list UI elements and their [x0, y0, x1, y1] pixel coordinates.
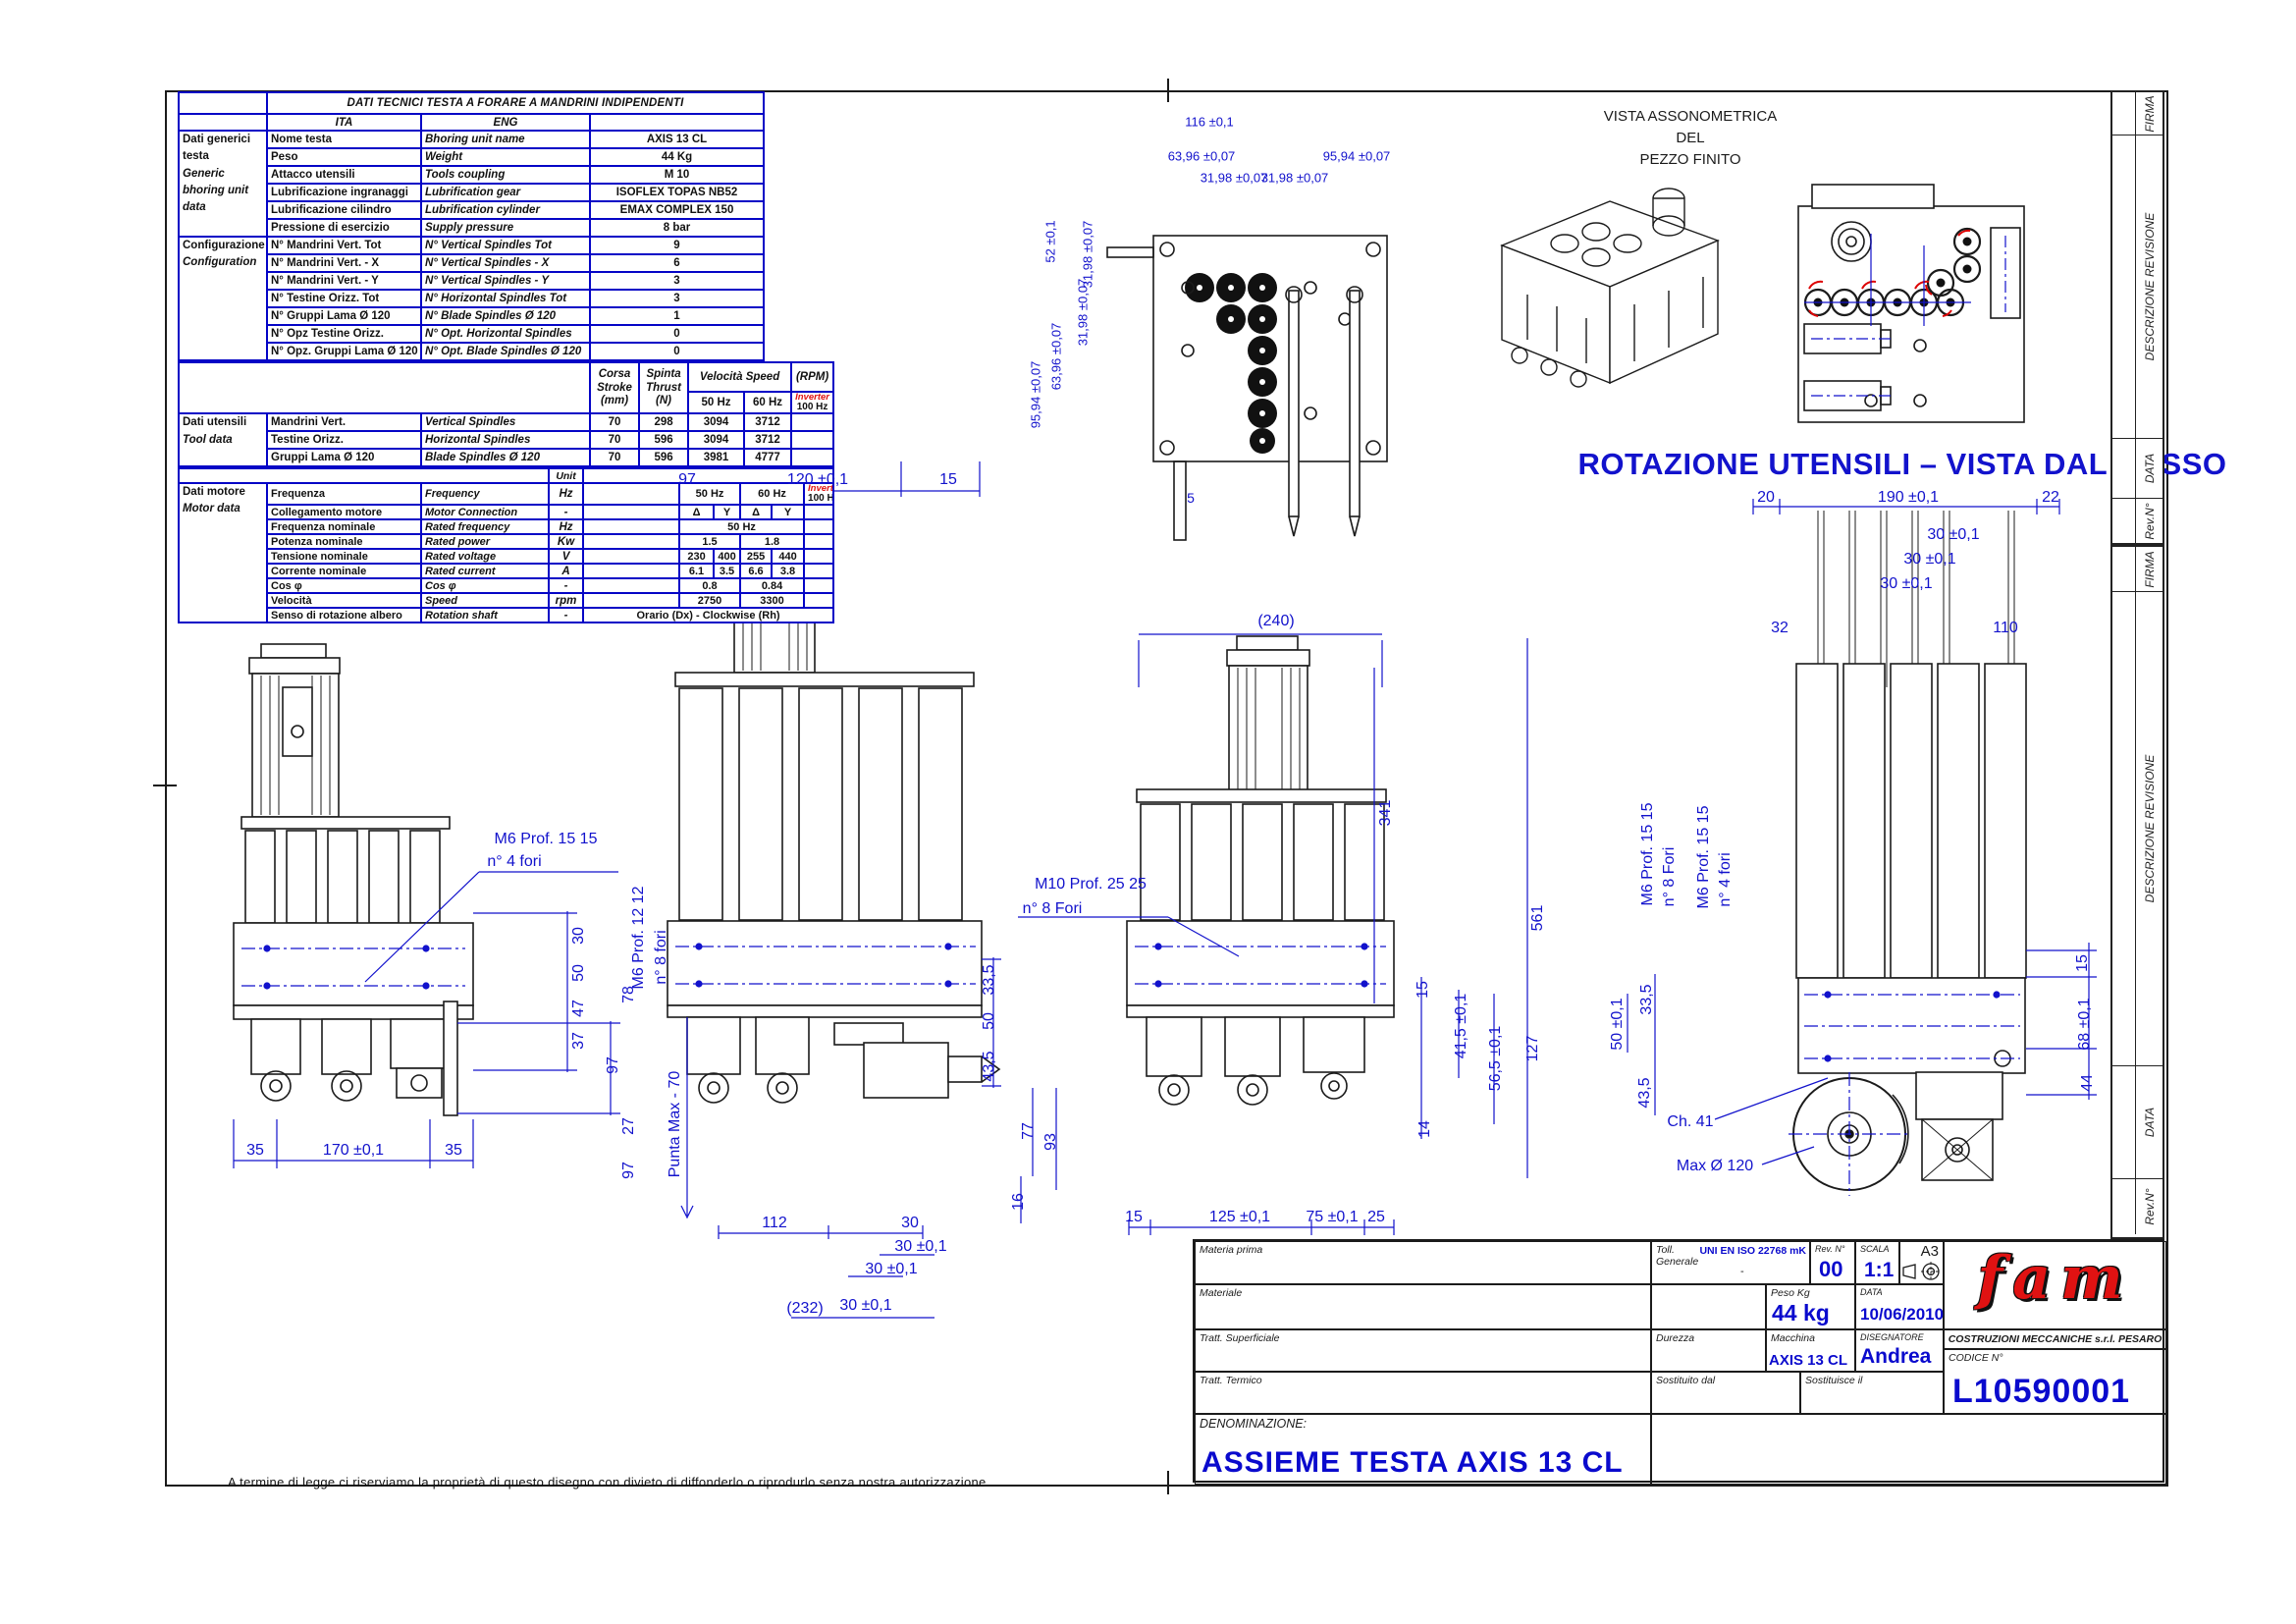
- table-cell: [791, 431, 833, 449]
- table-cell: [179, 92, 267, 114]
- table-row: N° Gruppi Lama Ø 120N° Blade Spindles Ø …: [179, 307, 764, 325]
- drawing-shape: CorsaStroke(mm)SpintaThrust(N)Velocità S…: [179, 362, 833, 466]
- table-cell: SpintaThrust(N): [639, 362, 688, 413]
- revision-cell-revn: Rev.N°: [2112, 1179, 2163, 1234]
- rev-n-label: Rev.N°: [2143, 1188, 2157, 1224]
- drawing-shape: [1321, 1073, 1347, 1099]
- table-cell: Unit: [549, 468, 583, 483]
- drawing-shape: [1825, 992, 1831, 998]
- drawing-shape: [687, 1017, 740, 1074]
- isometric-view-title: VISTA ASSONOMETRICA DEL PEZZO FINITO: [1604, 106, 1777, 170]
- text-element: Toll.: [1656, 1244, 1675, 1256]
- drawing-shape: [410, 831, 440, 923]
- text-element: Dati generici testa: [183, 132, 263, 166]
- tool-data-table: CorsaStroke(mm)SpintaThrust(N)Velocità S…: [178, 361, 834, 467]
- revision-cell-data: DATA: [2112, 439, 2163, 499]
- table-cell: 50 Hz: [679, 483, 740, 505]
- table-cell: 6: [590, 254, 764, 272]
- table-cell: 6.6: [740, 564, 772, 578]
- table-cell: Cos φ: [421, 578, 549, 593]
- denominazione-value: ASSIEME TESTA AXIS 13 CL: [1201, 1446, 1624, 1480]
- table-cell: [583, 468, 833, 483]
- table-row: Attacco utensiliTools couplingM 10: [179, 166, 764, 184]
- macchina-value: AXIS 13 CL: [1769, 1352, 1847, 1369]
- table-cell: Weight: [421, 148, 590, 166]
- table-cell: [791, 413, 833, 431]
- revision-cell-firma: FIRMA: [2112, 92, 2163, 135]
- table-row: Frequenza nominaleRated frequencyHz50 Hz: [179, 519, 833, 534]
- table-cell: [804, 505, 833, 519]
- drawing-shape: [1903, 1262, 1941, 1281]
- table-cell: Y: [714, 505, 740, 519]
- table-cell: N° Opt. Blade Spindles Ø 120: [421, 343, 590, 360]
- revision-cell-revn: Rev.N°: [2112, 499, 2163, 544]
- table-cell: DATI TECNICI TESTA A FORARE A MANDRINI I…: [267, 92, 764, 114]
- table-cell: 3.8: [772, 564, 804, 578]
- table-cell: N° Opz. Gruppi Lama Ø 120: [267, 343, 421, 360]
- company-cell: COSTRUZIONI MECCANICHE s.r.l. PESARO: [1944, 1329, 2166, 1349]
- tratt-termico-label: Tratt. Termico: [1200, 1375, 1262, 1386]
- table-cell: Hz: [549, 483, 583, 505]
- table-cell: Corrente nominale: [267, 564, 421, 578]
- table-cell: Orario (Dx) - Clockwise (Rh): [583, 608, 833, 623]
- table-cell: 0: [590, 325, 764, 343]
- fam-logo: fam: [1945, 1244, 2165, 1313]
- table-cell: 44 Kg: [590, 148, 764, 166]
- table-cell: [804, 564, 833, 578]
- sostituito-label: Sostituito dal: [1656, 1375, 1715, 1386]
- table-cell: Rated voltage: [421, 549, 549, 564]
- drawing-shape: [1129, 1219, 1394, 1235]
- drawing-shape: [919, 688, 962, 920]
- table-row: ConfigurazioneConfigurationN° Mandrini V…: [179, 237, 764, 254]
- drawing-shape: [1903, 1265, 1915, 1278]
- drawing-shape: [328, 831, 357, 923]
- codice-label: CODICE N°: [1949, 1352, 2003, 1364]
- table-cell: [583, 519, 679, 534]
- motor-data-table: UnitDati motoreMotor dataFrequenzaFreque…: [178, 467, 834, 623]
- drawing-shape: [1789, 1072, 1910, 1196]
- data-cell: DATA 10/06/2010: [1855, 1284, 1944, 1329]
- toll-value: UNI EN ISO 22768 mK: [1699, 1245, 1806, 1257]
- table-cell: CorsaStroke(mm): [590, 362, 639, 413]
- table-row: Senso di rotazione alberoRotation shaft-…: [179, 608, 833, 623]
- table-cell: ISOFLEX TOPAS NB52: [590, 184, 764, 201]
- table-row: Gruppi Lama Ø 120Blade Spindles Ø 120705…: [179, 449, 833, 466]
- drawing-shape: [1247, 1084, 1258, 1096]
- data-label: DATA: [2143, 454, 2157, 483]
- table-cell: 596: [639, 431, 688, 449]
- table-cell: [583, 578, 679, 593]
- table-cell: Collegamento motore: [267, 505, 421, 519]
- table-cell: Y: [772, 505, 804, 519]
- table-cell: 70: [590, 431, 639, 449]
- table-cell: Lubrificazione cilindro: [267, 201, 421, 219]
- table-cell: Lubrificazione ingranaggi: [267, 184, 421, 201]
- disegnatore-label: DISEGNATORE: [1860, 1332, 1924, 1342]
- scala-cell: SCALA 1:1: [1855, 1241, 1899, 1284]
- table-cell: Δ: [679, 505, 714, 519]
- table-cell: N° Opt. Horizontal Spindles: [421, 325, 590, 343]
- table-row: Testine Orizz.Horizontal Spindles7059630…: [179, 431, 833, 449]
- revision-cell-descrizione: DESCRIZIONE REVISIONE: [2112, 592, 2163, 1066]
- drawing-shape: [1259, 316, 1265, 322]
- drawing-shape: [1916, 1072, 2002, 1119]
- table-cell: 50 Hz: [688, 392, 744, 413]
- plan-view-sketch: [1107, 236, 1387, 540]
- table-row: ITAENG: [179, 114, 764, 131]
- drawing-shape: [1259, 285, 1265, 291]
- drawing-shape: [667, 921, 982, 1005]
- table-cell: ENG: [421, 114, 590, 131]
- table-cell: Supply pressure: [421, 219, 590, 237]
- table-cell: Horizontal Spindles: [421, 431, 590, 449]
- drawing-shape: [1421, 977, 1494, 1139]
- table-cell: 3981: [688, 449, 744, 466]
- table-cell: Frequenza nominale: [267, 519, 421, 534]
- table-cell: Kw: [549, 534, 583, 549]
- table-cell: Tools coupling: [421, 166, 590, 184]
- table-cell: [804, 519, 833, 534]
- peso-label: Peso Kg: [1771, 1287, 1810, 1299]
- drawing-shape: [675, 673, 974, 686]
- table-cell: Attacco utensili: [267, 166, 421, 184]
- text-element: Motor data: [183, 501, 263, 517]
- table-cell: 1.5: [679, 534, 740, 549]
- table-cell: [804, 593, 833, 608]
- table-cell: [583, 534, 679, 549]
- table-cell: 230: [679, 549, 714, 564]
- table-cell: N° Blade Spindles Ø 120: [421, 307, 590, 325]
- drawing-shape: [1141, 804, 1180, 920]
- table-cell: N° Mandrini Vert. Tot: [267, 237, 421, 254]
- drawing-sheet: DATI TECNICI TESTA A FORARE A MANDRINI I…: [0, 0, 2296, 1624]
- toll-label: Toll.Generale: [1656, 1244, 1698, 1268]
- table-cell: N° Mandrini Vert. - X: [267, 254, 421, 272]
- table-row: N° Opz. Gruppi Lama Ø 120N° Opt. Blade S…: [179, 343, 764, 360]
- table-cell: rpm: [549, 593, 583, 608]
- drawing-shape: [1753, 499, 2059, 514]
- text-element: Tool data: [183, 432, 263, 449]
- table-cell: Nome testa: [267, 131, 421, 148]
- drawing-shape: [1938, 664, 1979, 978]
- table-cell: Tensione nominale: [267, 549, 421, 564]
- drawing-shape: [444, 1001, 457, 1115]
- table-cell: Inverter100 Hz: [804, 483, 833, 505]
- macchina-cell: Macchina AXIS 13 CL: [1766, 1329, 1855, 1372]
- drawing-shape: [473, 911, 577, 1072]
- table-cell: Senso di rotazione albero: [267, 608, 421, 623]
- table-cell: [583, 593, 679, 608]
- drawing-shape: [1259, 379, 1265, 385]
- drawing-shape: [332, 1071, 361, 1101]
- drawing-shape: [457, 1021, 620, 1115]
- table-cell: [804, 534, 833, 549]
- tolleranze-cell: Toll.Generale UNI EN ISO 22768 mK -: [1651, 1241, 1810, 1284]
- table-cell: 70: [590, 413, 639, 431]
- iso-title-line3: PEZZO FINITO: [1604, 149, 1777, 171]
- table-cell: Speed: [421, 593, 549, 608]
- text-element: Generale: [1656, 1256, 1698, 1268]
- table-cell: N° Mandrini Vert. - Y: [267, 272, 421, 290]
- table-cell: 440: [772, 549, 804, 564]
- drawing-shape: [1812, 185, 1934, 208]
- table-row: N° Mandrini Vert. - YN° Vertical Spindle…: [179, 272, 764, 290]
- table-cell: ConfigurazioneConfiguration: [179, 237, 267, 360]
- drawing-shape: [776, 1082, 788, 1094]
- drawing-shape: [252, 674, 339, 817]
- table-cell: Rotation shaft: [421, 608, 549, 623]
- text-element: 100 Hz: [808, 494, 829, 505]
- drawing-shape: [945, 981, 951, 987]
- drawing-shape: [234, 1005, 473, 1019]
- drawing-shape: [739, 688, 782, 920]
- table-cell: Vertical Spindles: [421, 413, 590, 431]
- drawing-shape: [864, 1043, 948, 1098]
- table-cell: -: [549, 505, 583, 519]
- materiale-cell: Materiale: [1195, 1284, 1651, 1329]
- rev-value: 00: [1819, 1257, 1842, 1282]
- table-row: Lubrificazione ingranaggiLubrification g…: [179, 184, 764, 201]
- disegnatore-value: Andrea: [1860, 1345, 1931, 1369]
- table-cell: Inverter100 Hz: [791, 392, 833, 413]
- drawing-shape: [1796, 664, 1838, 978]
- data-label: DATA: [1860, 1287, 1883, 1297]
- table-cell: 3300: [740, 593, 804, 608]
- peso-cell: Peso Kg 44 kg: [1766, 1284, 1855, 1329]
- table-cell: 255: [740, 549, 772, 564]
- tratt-superficiale-cell: Tratt. Superficiale: [1195, 1329, 1651, 1372]
- table-cell: 596: [639, 449, 688, 466]
- table-cell: [179, 468, 549, 483]
- table-cell: Lubrification gear: [421, 184, 590, 201]
- drawing-shape: [1227, 650, 1309, 666]
- table-cell: 3: [590, 290, 764, 307]
- table-cell: Dati generici testaGeneric bhoring unit …: [179, 131, 267, 237]
- macchina-label: Macchina: [1771, 1332, 1815, 1344]
- drawing-shape: [1127, 921, 1394, 1005]
- firma-label: FIRMA: [2143, 95, 2157, 132]
- table-cell: AXIS 13 CL: [590, 131, 764, 148]
- denominazione-cell: DENOMINAZIONE: ASSIEME TESTA AXIS 13 CL: [1195, 1414, 1651, 1485]
- blank-cell: [1651, 1284, 1766, 1329]
- table-row: Collegamento motoreMotor Connection-ΔYΔY: [179, 505, 833, 519]
- drawing-shape: [1229, 666, 1308, 791]
- drawing-shape: [322, 1019, 371, 1074]
- projection-symbol-icon: [1901, 1262, 1943, 1281]
- revision-strip-bottom: FIRMA DESCRIZIONE REVISIONE DATA Rev.N°: [2110, 545, 2164, 1239]
- drawing-shape: [1921, 1262, 1941, 1281]
- drawing-shape: [1541, 359, 1557, 375]
- drawing-shape: [1294, 804, 1333, 920]
- drawing-shape: [1259, 348, 1265, 353]
- drawing-shape: [1571, 371, 1586, 387]
- drawing-shape: [249, 658, 340, 674]
- drawing-shape: [287, 831, 316, 923]
- rotation-view-sketch: [1798, 185, 2024, 422]
- table-cell: Velocità: [267, 593, 421, 608]
- drawing-shape: UnitDati motoreMotor dataFrequenzaFreque…: [179, 468, 833, 623]
- toll-value-2: -: [1740, 1266, 1744, 1277]
- drawing-shape: [1243, 804, 1282, 920]
- drawing-shape: [1137, 789, 1386, 802]
- drawing-shape: [1374, 638, 1527, 1178]
- table-cell: 400: [714, 549, 740, 564]
- format-cell: A3: [1899, 1241, 1944, 1284]
- drawing-shape: [945, 944, 951, 949]
- drawing-shape: [1628, 974, 1655, 1115]
- drawing-shape: [245, 831, 275, 923]
- drawing-shape: [791, 1255, 934, 1318]
- sostituisce-label: Sostituisce il: [1805, 1375, 1862, 1386]
- drawing-shape: [423, 946, 429, 951]
- drawing-shape: [1362, 944, 1367, 949]
- table-cell: Velocità Speed: [688, 362, 791, 392]
- table-cell: 2750: [679, 593, 740, 608]
- table-cell: 70: [590, 449, 639, 466]
- drawing-shape: [391, 1019, 448, 1068]
- drawing-shape: [264, 946, 270, 951]
- table-cell: Cos φ: [267, 578, 421, 593]
- table-cell: Lubrification cylinder: [421, 201, 590, 219]
- table-cell: ITA: [267, 114, 421, 131]
- table-cell: N° Opz Testine Orizz.: [267, 325, 421, 343]
- drawing-shape: [1985, 664, 2026, 978]
- table-row: N° Testine Orizz. TotN° Horizontal Spind…: [179, 290, 764, 307]
- table-cell: A: [549, 564, 583, 578]
- scala-label: SCALA: [1860, 1244, 1890, 1254]
- durezza-label: Durezza: [1656, 1332, 1694, 1344]
- drawing-shape: DATI TECNICI TESTA A FORARE A MANDRINI I…: [179, 92, 764, 360]
- drawing-shape: [948, 1056, 982, 1082]
- table-row: Tensione nominaleRated voltageV230400255…: [179, 549, 833, 564]
- materia-prima-label: Materia prima: [1200, 1244, 1262, 1256]
- scala-value: 1:1: [1864, 1259, 1894, 1282]
- table-cell: 3094: [688, 431, 744, 449]
- text-element: 100 Hz: [795, 403, 829, 413]
- table-cell: 3712: [744, 413, 791, 431]
- descrizione-revisione-label: DESCRIZIONE REVISIONE: [2143, 755, 2157, 903]
- table-cell: Pressione di esercizio: [267, 219, 421, 237]
- table-cell: -: [549, 578, 583, 593]
- table-cell: 6.1: [679, 564, 714, 578]
- table-cell: Dati motoreMotor data: [179, 483, 267, 623]
- drawing-shape: [1512, 348, 1527, 363]
- drawing-shape: [234, 1119, 473, 1168]
- drawing-shape: [1127, 1005, 1394, 1017]
- drawing-shape: [1238, 1075, 1267, 1105]
- drawing-shape: [1329, 1081, 1339, 1091]
- table-cell: -: [549, 608, 583, 623]
- drawing-shape: [251, 1019, 300, 1074]
- drawing-shape: [1304, 1017, 1364, 1072]
- table-cell: Rated power: [421, 534, 549, 549]
- drawing-shape: [1197, 285, 1202, 291]
- data-value: 10/06/2010: [1860, 1305, 1944, 1325]
- table-row: VelocitàSpeedrpm27503300: [179, 593, 833, 608]
- table-cell: 3.5: [714, 564, 740, 578]
- drawing-shape: [1843, 664, 1885, 978]
- company-name: COSTRUZIONI MECCANICHE s.r.l. PESARO: [1945, 1330, 2165, 1348]
- text-element: Configuration: [183, 254, 263, 271]
- table-cell: [804, 549, 833, 564]
- table-cell: N° Horizontal Spindles Tot: [421, 290, 590, 307]
- drawing-shape: [261, 1071, 291, 1101]
- durezza-cell: Durezza: [1651, 1329, 1766, 1372]
- isometric-view-sketch: [1502, 189, 1718, 387]
- drawing-shape: [1228, 316, 1234, 322]
- sostituito-cell: Sostituito dal: [1651, 1372, 1800, 1414]
- table-cell: [590, 114, 764, 131]
- table-row: PesoWeight44 Kg: [179, 148, 764, 166]
- generic-config-table: DATI TECNICI TESTA A FORARE A MANDRINI I…: [178, 91, 765, 361]
- drawing-shape: [234, 923, 473, 1005]
- tratt-superficiale-label: Tratt. Superficiale: [1200, 1332, 1280, 1344]
- codice-value: L10590001: [1952, 1373, 2130, 1411]
- table-row: Lubrificazione cilindroLubrification cyl…: [179, 201, 764, 219]
- rev-n-label: Rev.N°: [2143, 503, 2157, 539]
- table-cell: [583, 564, 679, 578]
- table-row: Cos φCos φ-0.80.84: [179, 578, 833, 593]
- table-cell: N° Vertical Spindles Tot: [421, 237, 590, 254]
- table-cell: 3712: [744, 431, 791, 449]
- drawing-shape: [397, 1068, 442, 1098]
- drawing-shape: [423, 983, 429, 989]
- drawing-shape: [1362, 981, 1367, 987]
- rev-label: Rev. N°: [1815, 1244, 1844, 1254]
- drawing-shape: [679, 688, 722, 920]
- drawing-shape: [1155, 981, 1161, 987]
- table-cell: Rated current: [421, 564, 549, 578]
- drawing-shape: [1994, 992, 2000, 998]
- table-cell: [583, 483, 679, 505]
- drawing-shape: [768, 1073, 797, 1103]
- table-cell: 298: [639, 413, 688, 431]
- table-cell: N° Vertical Spindles - X: [421, 254, 590, 272]
- iso-title-line2: DEL: [1604, 128, 1777, 149]
- drawing-shape: [369, 831, 399, 923]
- table-cell: Δ: [740, 505, 772, 519]
- elevation-view-4-sketch: [1793, 511, 2026, 1190]
- table-cell: 1.8: [740, 534, 804, 549]
- firma-label: FIRMA: [2143, 551, 2157, 587]
- table-row: Corrente nominaleRated currentA6.13.56.6…: [179, 564, 833, 578]
- drawing-shape: [719, 1225, 923, 1239]
- table-cell: Hz: [549, 519, 583, 534]
- table-cell: Testine Orizz.: [267, 431, 421, 449]
- revision-strip-top: FIRMA DESCRIZIONE REVISIONE DATA Rev.N°: [2110, 90, 2164, 545]
- materiale-label: Materiale: [1200, 1287, 1242, 1299]
- table-row: CorsaStroke(mm)SpintaThrust(N)Velocità S…: [179, 362, 833, 392]
- title-block: Materia prima Materiale Tratt. Superfici…: [1193, 1239, 2164, 1483]
- table-row: Dati utensiliTool dataMandrini Vert.Vert…: [179, 413, 833, 431]
- table-cell: Gruppi Lama Ø 120: [267, 449, 421, 466]
- drawing-shape: [667, 1005, 982, 1017]
- drawing-shape: [1937, 279, 1946, 288]
- table-cell: [583, 549, 679, 564]
- table-cell: 0.84: [740, 578, 804, 593]
- table-cell: 60 Hz: [744, 392, 791, 413]
- drawing-shape: [1159, 1075, 1189, 1105]
- text-element: Dati motore: [183, 484, 263, 501]
- table-row: Dati generici testaGeneric bhoring unit …: [179, 131, 764, 148]
- drawing-shape: [1289, 291, 1299, 516]
- drawing-shape: [1963, 265, 1972, 274]
- table-cell: Mandrini Vert.: [267, 413, 421, 431]
- peso-value: 44 kg: [1772, 1300, 1830, 1326]
- table-cell: V: [549, 549, 583, 564]
- codice-cell: CODICE N° L10590001: [1944, 1349, 2166, 1414]
